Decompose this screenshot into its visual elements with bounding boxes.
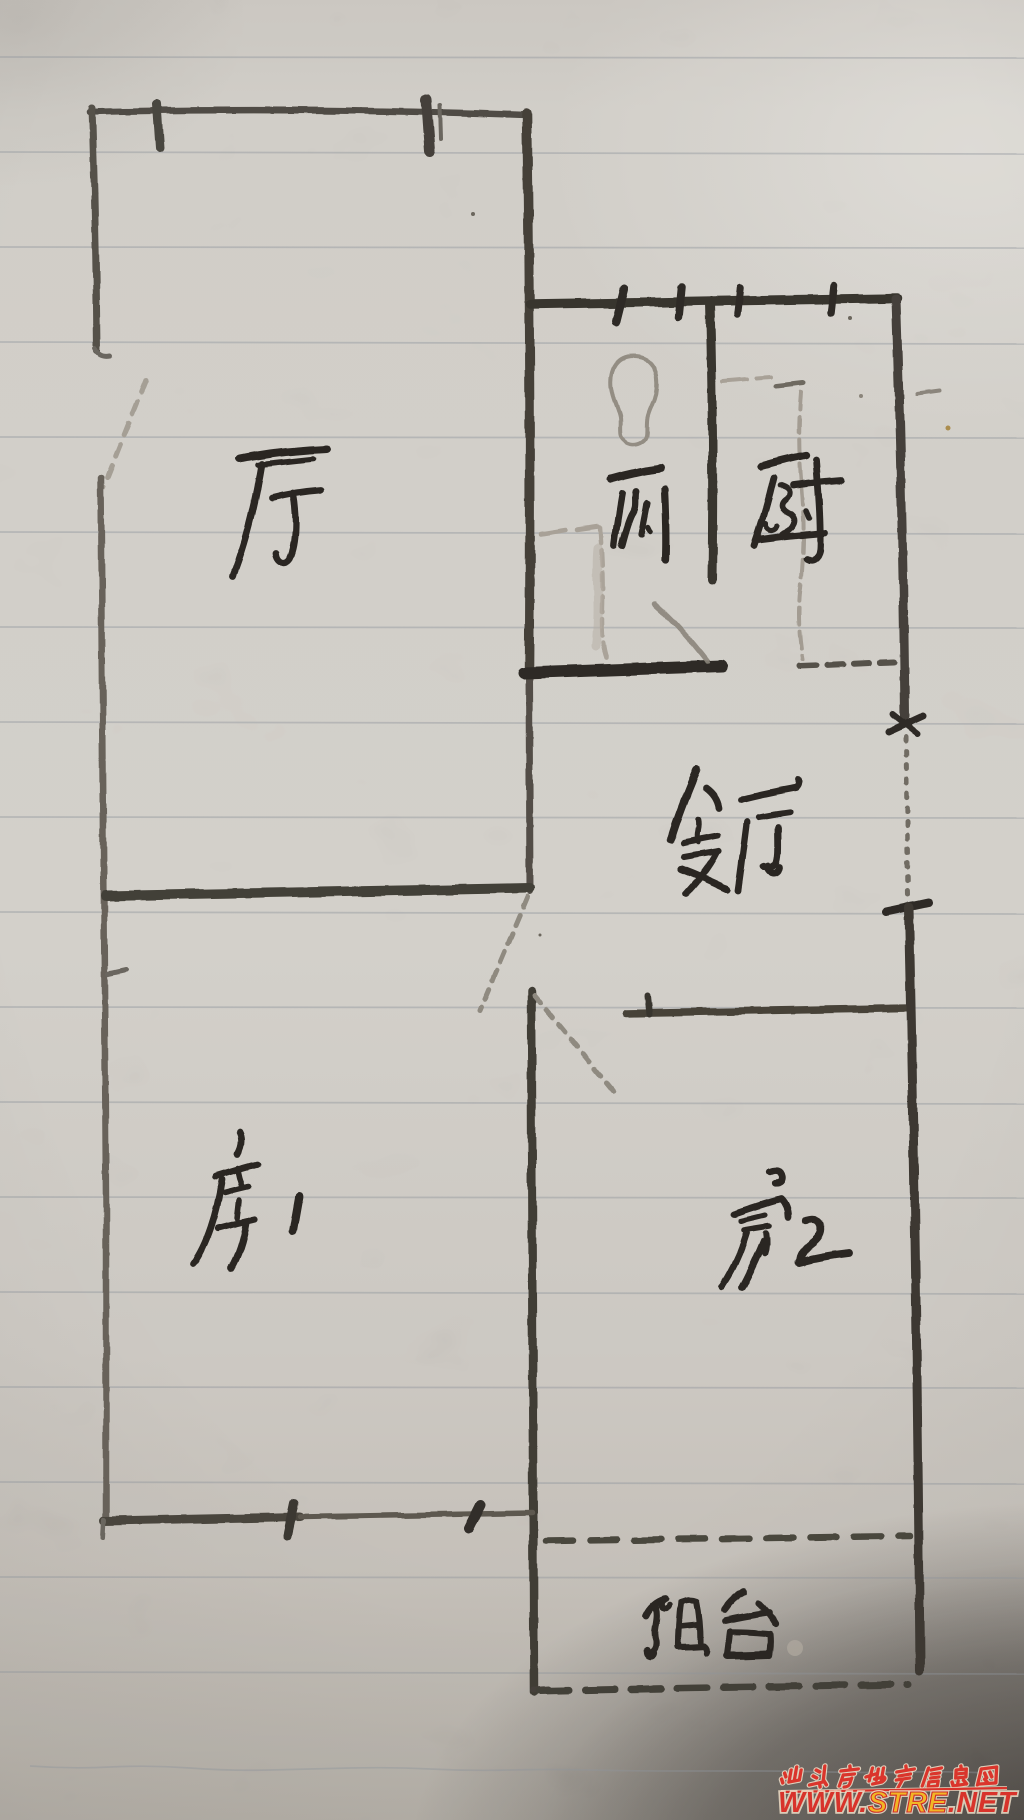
svg-text:WWW.STRE.NET: WWW.STRE.NET — [778, 1787, 1018, 1819]
